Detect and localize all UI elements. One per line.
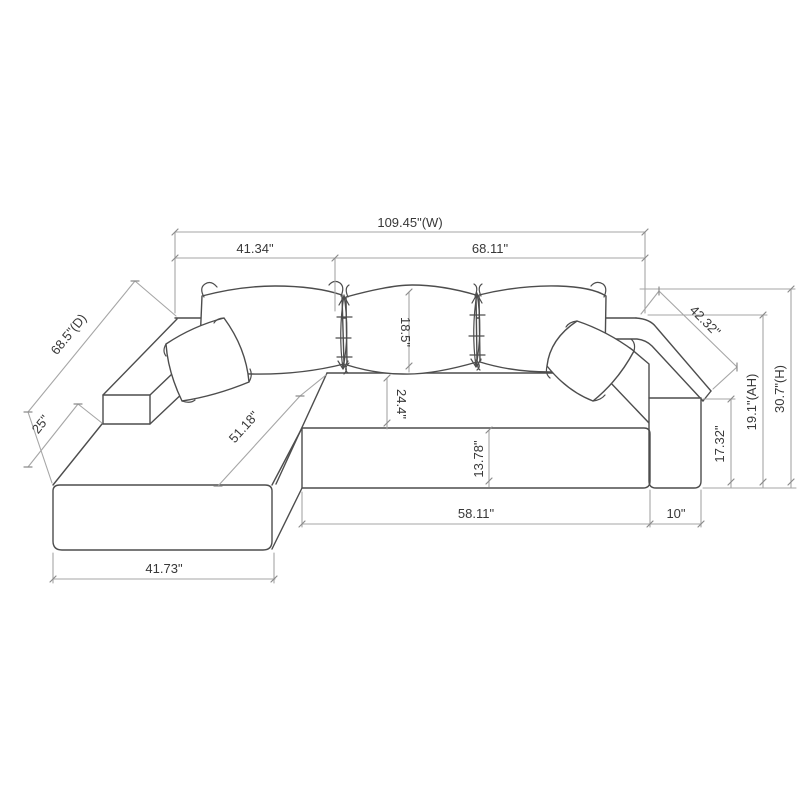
- product-dimension-diagram: 109.45"(W) 41.34" 68.11" 68.5"(D) 25" 51…: [0, 0, 800, 800]
- dim-left-width: 41.34": [236, 241, 274, 256]
- chaise-front: [53, 485, 272, 550]
- dim-seat-depth: 24.4": [394, 389, 409, 419]
- dim-arm-width: 10": [666, 506, 685, 521]
- dim-seat-width: 58.11": [458, 506, 495, 521]
- sofa-line-drawing: 109.45"(W) 41.34" 68.11" 68.5"(D) 25" 51…: [0, 0, 800, 800]
- dim-overall-height: 30.7"(H): [772, 365, 787, 413]
- dim-depth: 68.5"(D): [48, 311, 90, 358]
- dim-seat-front-height: 13.78": [471, 440, 486, 478]
- dim-right-width: 68.11": [472, 241, 509, 256]
- dim-right-arm-depth: 42.32": [687, 302, 724, 339]
- dim-chaise-width: 41.73": [145, 561, 183, 576]
- dim-seat-height: 17.32": [712, 425, 727, 463]
- dim-chaise-length: 51.18": [226, 408, 262, 446]
- dim-overall-width: 109.45"(W): [377, 215, 442, 230]
- dim-back-cushion-height: 18.5": [398, 317, 413, 347]
- dim-arm-height: 19.1"(AH): [744, 374, 759, 431]
- dim-chaise-front: 25": [29, 412, 53, 437]
